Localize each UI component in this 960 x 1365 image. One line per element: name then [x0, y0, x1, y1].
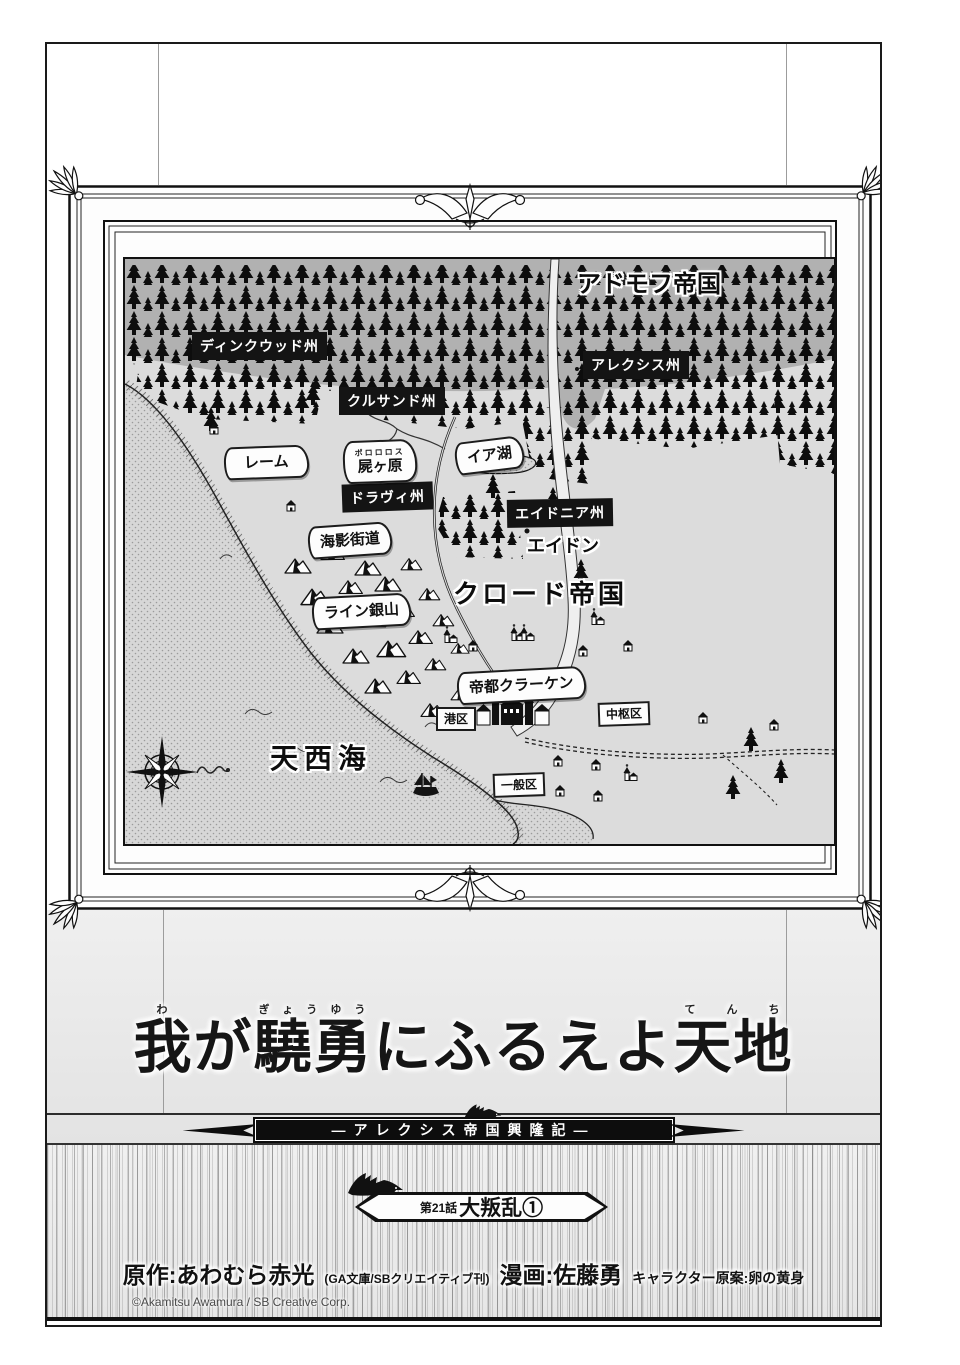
- credit-character-design: キャラクター原案:卵の黄身: [632, 1268, 804, 1288]
- wall-seam-line: [158, 44, 159, 185]
- label-district-general: 一般区: [493, 772, 546, 798]
- label-province-alexis: アレクシス州: [583, 351, 689, 379]
- picture-frame: アドモフ帝国 ディンクウッド州 クルサンド州 アレクシス州 ドラヴィ州 エイドニ…: [68, 185, 872, 910]
- label-admof-empire: アドモフ帝国: [577, 273, 721, 297]
- copyright-notice: ©Akamitsu Awamura / SB Creative Corp.: [132, 1295, 350, 1309]
- label-rheme: レーム: [223, 445, 309, 481]
- title-furigana: てんち: [674, 1004, 794, 1016]
- credit-publisher-note: (GA文庫/SBクリエイティブ刊): [324, 1270, 489, 1287]
- title-seg: が: [193, 1015, 253, 1080]
- credits-line: 原作:あわむら赤光 (GA文庫/SBクリエイティブ刊) 漫画:佐藤勇 キャラクタ…: [47, 1256, 880, 1290]
- credit-manga-artist: 漫画:佐藤勇: [499, 1256, 622, 1290]
- label-province-kurusand: クルサンド州: [339, 387, 445, 415]
- town-dot-eidon: [525, 529, 530, 534]
- series-subtitle: ―アレクシス帝国興隆記―: [332, 1120, 596, 1140]
- chapter-banner-inner: 第21話 大叛乱①: [359, 1195, 604, 1219]
- map: アドモフ帝国 ディンクウッド州 クルサンド州 アレクシス州 ドラヴィ州 エイドニ…: [123, 257, 836, 846]
- title-furigana: わ: [133, 1004, 193, 1016]
- label-shikabane-text: 屍ヶ原: [357, 457, 403, 476]
- label-town-eidon: エイドン: [527, 537, 599, 555]
- title-seg: にふるえよ: [374, 1015, 674, 1080]
- label-province-eidonia: エイドニア州: [507, 498, 613, 528]
- label-district-port: 港区: [436, 707, 476, 731]
- label-capital-kraken: 帝都クラーケン: [456, 666, 586, 706]
- label-sea-tensei: 天西海: [270, 745, 372, 773]
- town-dot-alexis: [575, 367, 579, 371]
- title-seg: 天地: [674, 1015, 794, 1080]
- wall-seam-line: [786, 44, 787, 185]
- manga-page-panel: アドモフ帝国 ディンクウッド州 クルサンド州 アレクシス州 ドラヴィ州 エイドニ…: [45, 42, 882, 1327]
- label-district-central: 中枢区: [598, 701, 651, 727]
- subtitle-ribbon: ―アレクシス帝国興隆記―: [183, 1117, 745, 1143]
- title-seg: 驍勇: [253, 1015, 373, 1080]
- label-claude-empire: クロード帝国: [453, 581, 627, 607]
- label-province-dravi: ドラヴィ州: [342, 481, 434, 512]
- chapter-number: 第21話: [420, 1199, 457, 1216]
- ribbon-arrow-right: [669, 1124, 745, 1137]
- title-seg: 我: [133, 1015, 193, 1080]
- chapter-title: 大叛乱①: [459, 1192, 543, 1222]
- chapter-banner: 第21話 大叛乱①: [355, 1192, 608, 1222]
- subtitle-bar: ―アレクシス帝国興隆記―: [253, 1117, 675, 1143]
- label-rhine-mine: ライン銀山: [311, 592, 412, 630]
- label-umikage-road: 海影街道: [307, 521, 393, 560]
- title-furigana: ぎょうゆう: [253, 1004, 373, 1016]
- label-shikabane: ポロロロス 屍ヶ原: [342, 439, 417, 485]
- label-province-dinkwood: ディンクウッド州: [192, 332, 327, 360]
- series-title: 我わが驍勇ぎょうゆうにふるえよ天地てんち: [47, 1004, 880, 1077]
- credit-original-author: 原作:あわむら赤光: [123, 1256, 315, 1290]
- ribbon-arrow-left: [183, 1124, 259, 1137]
